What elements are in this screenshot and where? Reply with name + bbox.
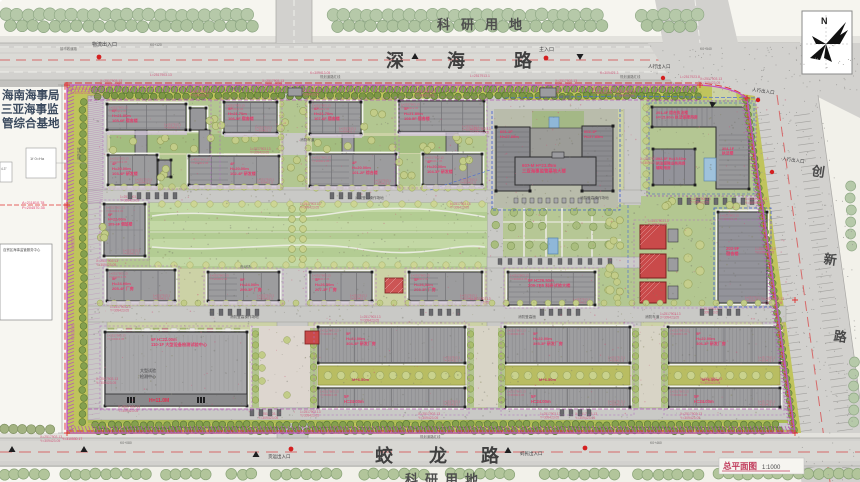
svg-text:1:1000: 1:1000 (762, 465, 781, 471)
svg-text:货运出入口: 货运出入口 (268, 453, 291, 460)
svg-text:H=24.00m: H=24.00m (531, 399, 551, 404)
svg-text:Y=309413.05: Y=309413.05 (425, 159, 443, 163)
svg-text:Y=309413.05: Y=309413.05 (312, 277, 330, 281)
svg-text:消防车道: 消防车道 (645, 314, 660, 319)
svg-text:207-3F 厂房: 207-3F 厂房 (315, 286, 337, 292)
svg-text:6F: 6F (108, 213, 113, 217)
svg-text:Y=309423.05: Y=309423.05 (450, 206, 469, 210)
svg-text:206-3F 厂房: 206-3F 厂房 (240, 286, 262, 292)
svg-text:Y=309413.05: Y=309413.05 (109, 109, 127, 113)
svg-text:规划道路红线: 规划道路红线 (620, 74, 641, 79)
svg-text:A=211810.78: A=211810.78 (22, 201, 44, 205)
svg-text:消防登高面: 消防登高面 (518, 314, 536, 319)
svg-text:H=27.85m: H=27.85m (584, 134, 603, 139)
svg-text:自贸区海事监管服务中心: 自贸区海事监管服务中心 (3, 247, 41, 252)
svg-text:Y=309423.05: Y=309423.05 (70, 91, 90, 95)
svg-text:205-4F 厂房: 205-4F 厂房 (112, 285, 134, 291)
svg-text:海南海事局: 海南海事局 (2, 88, 60, 102)
svg-text:Y=309421.3: Y=309421.3 (123, 252, 139, 256)
svg-text:H=24.00m: H=24.00m (344, 399, 364, 404)
svg-text:管综合基地: 管综合基地 (2, 116, 60, 130)
svg-text:主入口: 主入口 (539, 46, 554, 53)
svg-text:H=15.60m 执法保障用房: H=15.60m 执法保障用房 (656, 115, 698, 120)
svg-text:L=2517923.8: L=2517923.8 (680, 75, 700, 79)
svg-text:绿化控制线: 绿化控制线 (70, 323, 75, 340)
svg-text:Y=309423.05: Y=309423.05 (262, 83, 282, 87)
svg-text:蛟: 蛟 (375, 445, 393, 466)
svg-text:L=2517913.1: L=2517913.1 (470, 74, 490, 78)
svg-text:101-2F 综合楼: 101-2F 综合楼 (352, 169, 378, 175)
svg-text:304-3F 研发厂房: 304-3F 研发厂房 (346, 340, 376, 346)
svg-text:三亚海事监: 三亚海事监 (1, 102, 59, 116)
svg-text:Y=309423.05: Y=309423.05 (300, 93, 319, 97)
svg-text:蚂民出入口: 蚂民出入口 (520, 450, 543, 457)
svg-text:执法保障业务用房: 执法保障业务用房 (656, 161, 686, 166)
svg-text:用地红线: 用地红线 (70, 236, 75, 250)
svg-text:Y=309423.05: Y=309423.05 (745, 201, 765, 205)
svg-text:109-6F 倒班楼: 109-6F 倒班楼 (108, 221, 133, 226)
svg-text:路: 路 (514, 50, 533, 71)
svg-text:Y=309413.05: Y=309413.05 (226, 107, 244, 111)
svg-text:龙: 龙 (429, 445, 447, 466)
svg-text:H=11.0M: H=11.0M (149, 398, 169, 404)
svg-text:Y=309423.05: Y=309423.05 (100, 83, 120, 87)
svg-text:H=24.00m: H=24.00m (694, 399, 714, 404)
svg-text:Y=309423.05: Y=309423.05 (110, 309, 129, 313)
svg-text:107-6F 宿舍楼: 107-6F 宿舍楼 (314, 115, 340, 121)
svg-text:H=27.85m: H=27.85m (500, 134, 519, 139)
svg-text:科研用地: 科研用地 (437, 17, 533, 32)
svg-text:Y=309423.05: Y=309423.05 (190, 94, 209, 98)
svg-text:Y=309421.3: Y=309421.3 (164, 126, 180, 130)
svg-text:深: 深 (386, 50, 404, 71)
svg-text:106-5F 宿舍楼: 106-5F 宿舍楼 (228, 115, 254, 121)
svg-text:宿舍楼: 宿舍楼 (726, 250, 739, 257)
svg-text:总平面图: 总平面图 (723, 461, 757, 471)
svg-text:1f 0=Ha: 1f 0=Ha (30, 156, 45, 161)
svg-text:Y=309423.05: Y=309423.05 (700, 81, 720, 85)
svg-text:新: 新 (823, 251, 838, 268)
svg-text:Y=309423.05: Y=309423.05 (700, 381, 720, 385)
svg-text:Y=309421.3: Y=309421.3 (758, 403, 774, 407)
svg-text:M+6.50m: M+6.50m (352, 377, 369, 382)
svg-text:Y=309413.05: Y=309413.05 (411, 277, 429, 281)
svg-text:Y=309413.05: Y=309413.05 (312, 107, 330, 111)
svg-text:执法楼: 执法楼 (722, 151, 734, 156)
svg-text:接市政道路: 接市政道路 (60, 46, 78, 51)
svg-text:4.3°: 4.3° (1, 167, 7, 171)
svg-text:Y=309423.05: Y=309423.05 (648, 223, 667, 227)
svg-text:Y=309423.05: Y=309423.05 (360, 319, 379, 323)
svg-text:Y=309423.05: Y=309423.05 (690, 201, 709, 205)
svg-text:Y=309423.05: Y=309423.05 (120, 199, 139, 203)
svg-text:绿化带: 绿化带 (230, 86, 241, 91)
svg-text:Y=309423.05: Y=309423.05 (592, 91, 612, 95)
svg-text:Y=309421.3: Y=309421.3 (339, 130, 355, 134)
svg-text:N: N (821, 16, 828, 26)
svg-text:607-M H=23.85m: 607-M H=23.85m (522, 163, 556, 168)
svg-text:Y=309423.05: Y=309423.05 (300, 414, 319, 418)
svg-text:110-1F 大型设备检测试验中心: 110-1F 大型设备检测试验中心 (151, 341, 208, 348)
svg-text:Y=309413.05: Y=309413.05 (191, 161, 209, 165)
svg-text:物流出入口: 物流出入口 (92, 41, 117, 48)
svg-text:辅助用房: 辅助用房 (656, 165, 671, 170)
svg-text:Y=309423.05: Y=309423.05 (540, 416, 559, 420)
svg-text:102-4F 研发楼: 102-4F 研发楼 (230, 170, 256, 176)
svg-text:Y=309423.05: Y=309423.05 (40, 439, 60, 443)
svg-text:科研用地: 科研用地 (405, 472, 485, 482)
svg-text:Y=309413.05: Y=309413.05 (510, 277, 528, 281)
svg-text:Y=309423.05: Y=309423.05 (250, 151, 269, 155)
svg-text:108-5F 宿舍楼: 108-5F 宿舍楼 (404, 115, 430, 121)
svg-text:306-3F 研发厂房: 306-3F 研发厂房 (696, 340, 726, 346)
svg-text:Y=309421.3: Y=309421.3 (608, 359, 624, 363)
svg-text:Y=309421.3: Y=309421.3 (608, 403, 624, 407)
svg-text:K0+080: K0+080 (120, 441, 132, 445)
svg-text:K0+120: K0+120 (150, 43, 162, 47)
svg-text:103-4F 研发楼: 103-4F 研发楼 (112, 170, 138, 176)
svg-text:三亚海事监管基地大楼: 三亚海事监管基地大楼 (522, 167, 567, 174)
svg-text:规划道路红线: 规划道路红线 (420, 434, 441, 439)
svg-text:Y=309423.05: Y=309423.05 (615, 94, 634, 98)
svg-text:Y=309423.05: Y=309423.05 (660, 316, 679, 320)
svg-text:Y=309413.05: Y=309413.05 (110, 160, 128, 164)
svg-text:运动场: 运动场 (240, 264, 251, 269)
svg-text:201-4F 综合执法楼: 201-4F 综合执法楼 (656, 110, 688, 115)
svg-text:M+6.50m: M+6.50m (539, 377, 556, 382)
svg-text:检测中心: 检测中心 (140, 373, 156, 379)
svg-text:路: 路 (481, 445, 500, 466)
svg-text:Y=309421.3: Y=309421.3 (257, 181, 273, 185)
svg-text:Y=309421.3: Y=309421.3 (460, 181, 476, 185)
svg-text:209-2B5 科研试验大楼: 209-2B5 科研试验大楼 (528, 282, 571, 289)
svg-text:绿化带: 绿化带 (560, 94, 571, 99)
svg-text:K0+460: K0+460 (650, 441, 662, 445)
svg-text:104-3F 研发楼: 104-3F 研发楼 (427, 168, 453, 174)
svg-text:Y=309413.05: Y=309413.05 (312, 159, 330, 163)
svg-text:道路红线: 道路红线 (76, 146, 81, 160)
svg-text:105-6F 宿舍楼: 105-6F 宿舍楼 (112, 117, 138, 123)
svg-text:Y=309413.05: Y=309413.05 (210, 277, 228, 281)
svg-text:Y=309413.05: Y=309413.05 (401, 106, 419, 110)
svg-text:Y=309421.3: Y=309421.3 (255, 129, 271, 133)
svg-text:P=204570.35: P=204570.35 (22, 206, 45, 210)
svg-text:Y=309423.05: Y=309423.05 (680, 416, 700, 420)
svg-text:海: 海 (447, 50, 465, 71)
svg-text:K0+540: K0+540 (700, 47, 712, 51)
svg-text:Y=309423.05: Y=309423.05 (418, 416, 438, 420)
svg-text:L=2517903.13: L=2517903.13 (150, 73, 172, 77)
svg-text:Y=309423.05: Y=309423.05 (258, 416, 278, 420)
svg-text:消防登高操作场地: 消防登高操作场地 (580, 195, 609, 200)
svg-text:规划道路红线: 规划道路红线 (320, 74, 341, 79)
svg-text:消防登高操作场地: 消防登高操作场地 (230, 314, 259, 319)
svg-text:K=309421.3: K=309421.3 (600, 71, 618, 75)
svg-text:Y=309421.3: Y=309421.3 (758, 359, 774, 363)
svg-text:Y=310530.17: Y=310530.17 (62, 437, 82, 441)
svg-text:创: 创 (810, 163, 826, 180)
svg-text:Y=309413.05: Y=309413.05 (109, 275, 127, 279)
svg-text:大型试验: 大型试验 (140, 367, 156, 373)
